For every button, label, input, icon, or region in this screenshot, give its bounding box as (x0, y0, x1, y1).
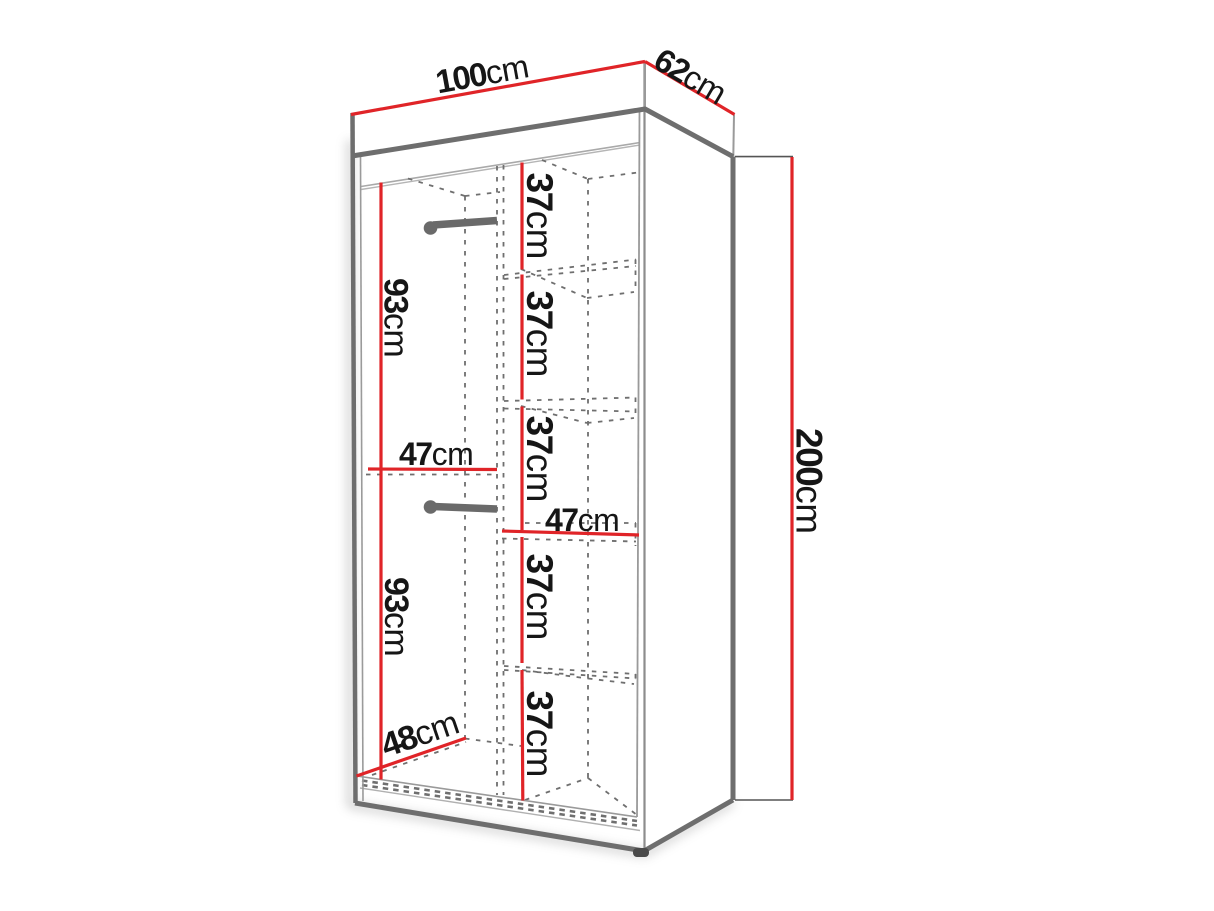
svg-text:93cm: 93cm (377, 278, 415, 357)
svg-text:37cm: 37cm (519, 173, 560, 259)
svg-text:37cm: 37cm (519, 554, 560, 640)
svg-text:37cm: 37cm (519, 416, 560, 502)
svg-text:47cm: 47cm (399, 436, 473, 472)
svg-text:37cm: 37cm (519, 691, 560, 777)
svg-text:200cm: 200cm (789, 428, 830, 534)
svg-text:37cm: 37cm (519, 291, 560, 377)
svg-text:47cm: 47cm (545, 502, 619, 538)
svg-text:93cm: 93cm (377, 577, 415, 656)
